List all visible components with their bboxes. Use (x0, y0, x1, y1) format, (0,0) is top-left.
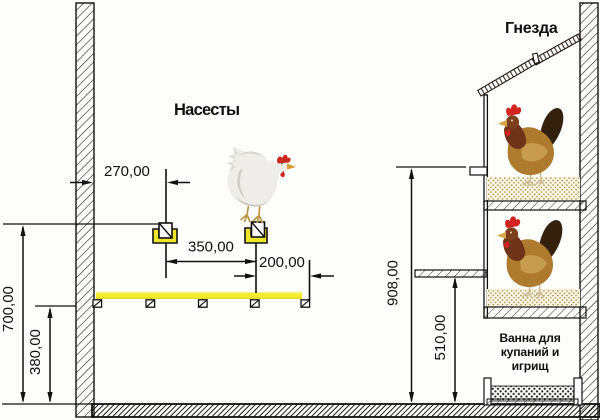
svg-text:908,00: 908,00 (385, 260, 402, 306)
svg-text:Ванна для: Ванна для (499, 331, 560, 345)
svg-text:Насесты: Насесты (174, 101, 239, 119)
svg-text:350,00: 350,00 (188, 239, 234, 256)
svg-text:510,00: 510,00 (432, 315, 449, 361)
svg-text:270,00: 270,00 (104, 163, 150, 180)
svg-text:Гнезда: Гнезда (505, 20, 558, 37)
svg-text:купаний и: купаний и (501, 345, 559, 359)
svg-text:200,00: 200,00 (259, 254, 305, 271)
svg-text:380,00: 380,00 (27, 329, 44, 375)
svg-text:игрищ: игрищ (512, 359, 550, 373)
svg-text:700,00: 700,00 (0, 286, 17, 332)
